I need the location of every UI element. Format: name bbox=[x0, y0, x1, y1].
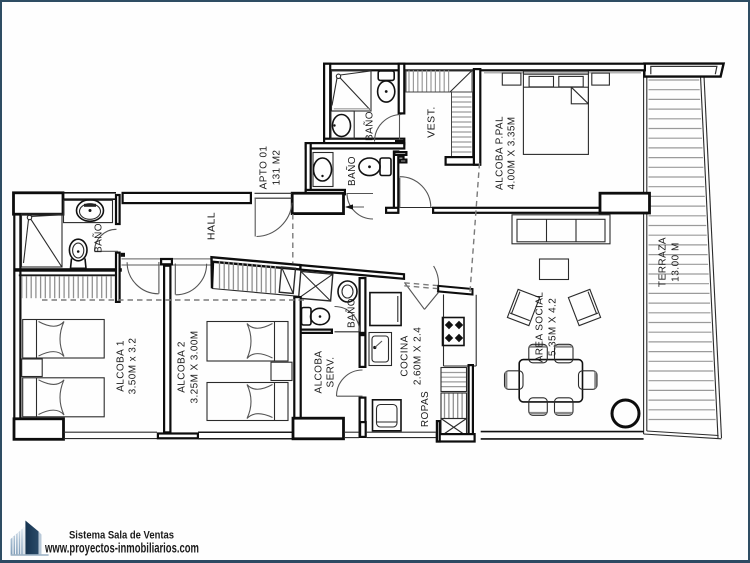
svg-text:ALCOBA 1: ALCOBA 1 bbox=[115, 340, 126, 392]
svg-text:BAÑO: BAÑO bbox=[345, 156, 358, 186]
svg-text:TERRAZA: TERRAZA bbox=[658, 237, 669, 287]
svg-text:VEST.: VEST. bbox=[426, 106, 438, 138]
svg-text:BAÑO: BAÑO bbox=[92, 223, 105, 253]
svg-text:SERV.: SERV. bbox=[326, 357, 337, 388]
svg-text:BAÑO: BAÑO bbox=[363, 111, 376, 141]
svg-text:ALCOBA P.PAL: ALCOBA P.PAL bbox=[494, 116, 505, 190]
svg-text:COCINA: COCINA bbox=[400, 335, 411, 376]
svg-text:131 M2: 131 M2 bbox=[271, 150, 282, 186]
svg-text:www.proyectos-inmobiliarios.co: www.proyectos-inmobiliarios.com bbox=[44, 540, 199, 555]
svg-text:APTO 01: APTO 01 bbox=[259, 146, 270, 190]
svg-text:4.00M X 3.35M: 4.00M X 3.35M bbox=[507, 116, 518, 189]
svg-text:3.50M x 3.2: 3.50M x 3.2 bbox=[128, 338, 139, 395]
svg-text:5.35M X 4.2: 5.35M X 4.2 bbox=[547, 298, 558, 356]
svg-text:HALL: HALL bbox=[206, 212, 218, 240]
svg-text:13.00 M: 13.00 M bbox=[670, 242, 681, 282]
svg-text:AREA SOCIAL: AREA SOCIAL bbox=[535, 292, 546, 363]
svg-text:ALCOBA 2: ALCOBA 2 bbox=[177, 341, 188, 393]
svg-text:ROPAS: ROPAS bbox=[420, 391, 431, 427]
svg-text:ALCOBA: ALCOBA bbox=[313, 351, 324, 394]
svg-text:2.60M X 2.4: 2.60M X 2.4 bbox=[412, 327, 423, 385]
svg-text:BAÑO: BAÑO bbox=[345, 298, 358, 328]
svg-text:3.25M X 3.00M: 3.25M X 3.00M bbox=[189, 330, 200, 403]
